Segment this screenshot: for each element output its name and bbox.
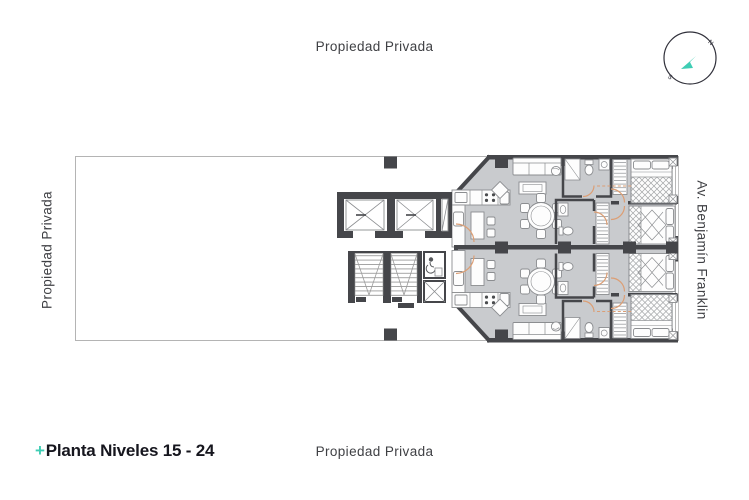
elevator-cab-1 xyxy=(346,200,384,230)
accessible-wc xyxy=(424,252,445,278)
elevator-core xyxy=(341,195,449,239)
bed-blanket xyxy=(631,177,672,203)
stove-burner xyxy=(485,199,488,202)
column xyxy=(623,242,636,254)
stove-burner xyxy=(485,193,488,196)
service-shaft-2 xyxy=(424,281,445,302)
pillow xyxy=(634,161,651,169)
toilet xyxy=(585,165,593,175)
dining-chair xyxy=(537,194,546,203)
elevator-door xyxy=(353,230,375,239)
dining-chair xyxy=(537,230,546,239)
washbasin xyxy=(558,203,568,216)
column-top-boundary xyxy=(384,157,397,169)
label-propiedad-privada-left: Propiedad Privada xyxy=(40,191,55,309)
plan-title-text: Planta Niveles 15 - 24 xyxy=(46,441,215,460)
pillow xyxy=(666,209,674,225)
column-bottom-boundary xyxy=(384,329,397,341)
bar-stool xyxy=(487,217,495,225)
column xyxy=(495,242,508,254)
compass-needle-icon xyxy=(681,56,696,69)
ceiling-fan-icon xyxy=(551,166,560,175)
column xyxy=(495,155,508,168)
nightstand xyxy=(669,158,677,166)
stair-flight-2 xyxy=(391,254,417,303)
dining-table xyxy=(528,203,555,230)
bed-blanket xyxy=(629,206,641,244)
toilet xyxy=(435,268,442,276)
title-plus-icon: + xyxy=(35,441,45,460)
stair-flight-1 xyxy=(355,254,383,303)
bedroom-a xyxy=(631,158,677,203)
stair-core xyxy=(348,252,445,308)
bar-stool xyxy=(487,229,495,237)
bedroom-divider-wall xyxy=(611,201,619,205)
stove-burner xyxy=(492,199,495,202)
plan-title: +Planta Niveles 15 - 24 xyxy=(35,441,214,461)
elevator-cab-2 xyxy=(397,200,433,230)
floor-plan-drawing xyxy=(70,150,685,346)
floor-plan-page: Propiedad Privada Propiedad Privada Av. … xyxy=(0,0,749,500)
service-shaft xyxy=(442,199,448,231)
column xyxy=(666,242,678,254)
column xyxy=(558,242,571,254)
bedroom-b xyxy=(629,206,677,245)
pillow xyxy=(652,161,669,169)
nightstand xyxy=(669,195,677,203)
label-propiedad-privada-top: Propiedad Privada xyxy=(0,39,749,54)
compass: N S xyxy=(660,28,720,88)
washbasin xyxy=(599,159,610,170)
toilet xyxy=(563,227,573,235)
label-av-benjamin-franklin: Av. Benjamín Franklin xyxy=(695,180,710,319)
kitchen-cabinet xyxy=(455,193,467,203)
elevator-door xyxy=(403,230,425,239)
